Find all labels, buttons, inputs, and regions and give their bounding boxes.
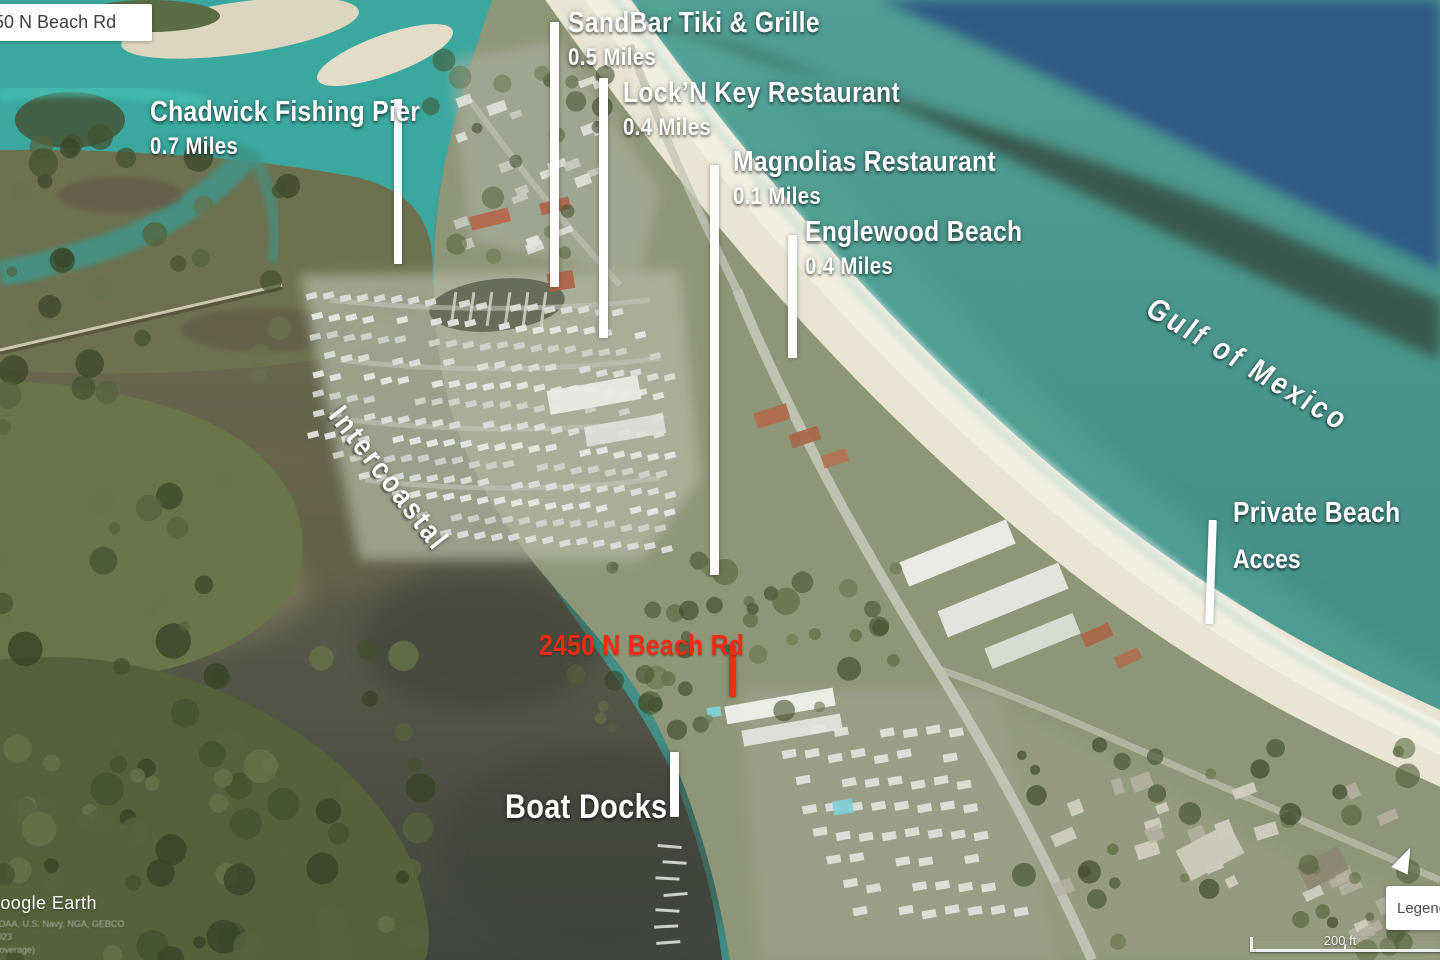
annotation-title-line2: Acces [1233,544,1400,575]
annotation-distance: 0.1 Miles [733,183,996,211]
credit-line: (coverage) [0,944,124,957]
annotation-property-address: 2450 N Beach Rd [539,631,780,663]
annotation-title: SandBar Tiki & Grille [568,8,820,40]
annotation-distance: 0.7 Miles [150,133,420,161]
englewood-leader-line [788,235,797,358]
legend-button[interactable]: Legend [1386,886,1440,930]
annotation-magnolias: Magnolias Restaurant 0.1 Miles [733,147,1042,211]
scale-bar-label: 200 ft [1250,933,1430,948]
lock-n-key-leader-line [599,78,608,338]
annotation-sandbar-tiki-grille: SandBar Tiki & Grille 0.5 Miles [568,8,864,72]
annotation-distance: 0.4 Miles [623,114,900,142]
annotation-title: Magnolias Restaurant [733,147,996,179]
credit-line: 2023 [0,931,124,944]
credit-line: NOAA, U.S. Navy, NGA, GEBCO [0,918,124,931]
annotation-chadwick-fishing-pier: Chadwick Fishing Pier 0.7 Miles [150,97,468,161]
imagery-credits: NOAA, U.S. Navy, NGA, GEBCO 2023 (covera… [0,918,124,957]
annotation-englewood-beach: Englewood Beach 0.4 Miles [805,217,1061,281]
legend-button-label: Legend [1397,900,1440,917]
annotation-title: Lock’N Key Restaurant [623,78,900,110]
annotation-title: Boat Docks [505,789,667,826]
magnolias-leader-line [710,165,719,575]
google-earth-logo: Google Earth [0,893,97,914]
scale-bar: 200 ft [1250,930,1440,952]
annotation-title: 2450 N Beach Rd [539,631,744,663]
annotation-title: Englewood Beach [805,217,1022,249]
google-earth-viewport[interactable]: Chadwick Fishing Pier 0.7 Miles SandBar … [0,0,1440,960]
annotation-title: Chadwick Fishing Pier [150,97,420,129]
annotation-boat-docks: Boat Docks [505,789,696,826]
search-result-text: 2450 N Beach Rd [0,12,116,33]
annotation-private-beach-access: Private Beach Acces [1233,498,1430,575]
annotation-distance: 0.5 Miles [568,44,820,72]
annotation-title: Private Beach [1233,498,1400,530]
sandbar-leader-line [550,22,559,287]
annotation-distance: 0.4 Miles [805,253,1022,281]
annotation-lock-n-key: Lock’N Key Restaurant 0.4 Miles [623,78,949,142]
search-result-label[interactable]: 2450 N Beach Rd [0,4,152,41]
